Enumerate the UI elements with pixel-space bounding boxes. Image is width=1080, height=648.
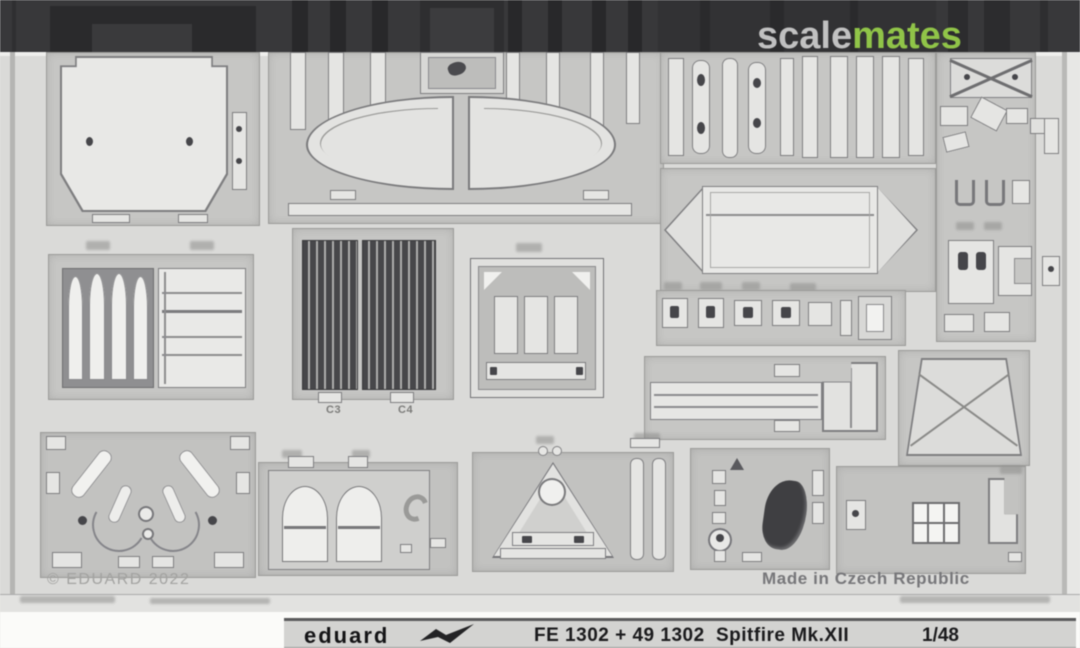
made-in-label: Made in Czech Republic — [762, 569, 970, 589]
nameplate-code: FE 1302 + 49 1302 — [534, 625, 705, 647]
pe-small-part — [118, 556, 140, 568]
pe-slat — [856, 56, 874, 158]
rivet-hole — [186, 137, 193, 146]
pe-tab — [330, 190, 356, 200]
louvre-line — [162, 354, 242, 356]
buckle-ring — [142, 528, 154, 540]
pe-bracket-part — [948, 240, 994, 304]
shadow-silhouette — [628, 0, 642, 52]
pe-tab — [348, 456, 368, 468]
pe-strip — [232, 112, 247, 190]
pe-small-part — [748, 62, 766, 154]
pe-rib — [554, 296, 578, 354]
part-label-smudge — [190, 241, 214, 250]
door-window-arch — [336, 486, 382, 562]
pe-part-armour-plate — [60, 56, 228, 212]
shadow-silhouette — [92, 24, 192, 52]
edge-smudge — [150, 598, 270, 604]
pe-part-trapezoid-brace — [906, 358, 1022, 456]
shadow-silhouette — [12, 0, 16, 52]
watermark-scale-text: scale — [757, 15, 852, 57]
louvre-slat — [133, 276, 148, 380]
pe-small-part — [236, 472, 250, 494]
part-label-smudge — [700, 282, 722, 290]
pe-small-part — [630, 438, 660, 448]
shadow-silhouette — [508, 0, 522, 52]
part-label-smudge — [1000, 466, 1022, 474]
etch-line — [710, 192, 870, 268]
pe-base-strip — [500, 548, 606, 559]
fret-right-margin — [1067, 52, 1080, 610]
buckle-hole — [670, 306, 679, 318]
pe-small-part — [552, 446, 562, 456]
shadow-silhouette — [1040, 0, 1048, 52]
buckle-hole — [753, 118, 761, 128]
rivet-hole — [236, 126, 242, 132]
pe-small-part — [1044, 118, 1059, 154]
watermark-mates-text: mates — [852, 15, 962, 57]
buckle-hole — [697, 74, 705, 86]
pe-tab — [774, 364, 800, 377]
pe-tab — [390, 392, 414, 403]
pe-slat — [882, 56, 900, 158]
edge-smudge — [900, 596, 1050, 603]
pe-small-part — [52, 552, 82, 568]
pe-part-face — [62, 58, 226, 210]
bracket-slot — [976, 252, 986, 270]
shadow-silhouette — [592, 0, 606, 52]
pe-small-part — [152, 556, 174, 568]
window-grid-part — [912, 502, 960, 544]
pe-small-part — [712, 470, 726, 484]
pe-small-part — [840, 300, 852, 336]
edge-smudge — [20, 596, 115, 603]
pe-small-part — [780, 58, 794, 156]
rivet-hole — [1048, 266, 1054, 272]
pe-small-part — [812, 502, 824, 524]
buckle-hole — [697, 122, 705, 134]
keyhole-stem — [714, 550, 726, 562]
pe-part-grille-c3 — [302, 240, 358, 390]
pe-buckle — [955, 180, 975, 206]
pe-small-part — [430, 538, 446, 548]
louvre-slat — [68, 276, 83, 380]
louvre-edge — [164, 272, 166, 384]
pe-small-part — [538, 446, 548, 456]
pe-strip — [626, 52, 640, 124]
pe-slat — [830, 56, 848, 158]
part-label-smudge — [664, 282, 682, 290]
pe-tab — [774, 420, 800, 432]
eduard-bird-logo-icon — [420, 624, 478, 644]
louvre-line — [162, 310, 242, 313]
part-label-smudge — [516, 243, 542, 252]
shadow-silhouette — [330, 0, 346, 52]
pe-strip — [290, 52, 306, 130]
bar-slot — [522, 536, 532, 543]
buckle-ring — [138, 506, 154, 522]
pe-part-long-bracket — [650, 382, 822, 420]
louvre-slat — [111, 273, 127, 380]
rivet-hole — [964, 74, 970, 80]
buckle-hole — [706, 306, 715, 318]
shadow-silhouette — [700, 0, 710, 52]
pe-small-part — [940, 106, 968, 126]
buckle-hole — [753, 78, 761, 88]
shadow-silhouette — [984, 0, 1010, 52]
pe-small-part — [722, 58, 738, 158]
fret-left-edge — [10, 52, 15, 610]
pe-tab — [583, 190, 609, 200]
buckle-hole — [781, 307, 791, 318]
pe-small-part — [742, 552, 762, 562]
pe-small-part — [984, 312, 1010, 332]
nameplate-scale: 1/48 — [922, 625, 959, 647]
pe-small-part — [46, 436, 66, 450]
fret-copyright: © EDUARD 2022 — [47, 571, 190, 589]
keyhole-hole — [716, 534, 724, 542]
pe-tab — [178, 214, 208, 223]
pe-buckle — [985, 180, 1005, 206]
rivet-hole — [86, 137, 93, 146]
pe-tab — [92, 214, 130, 223]
pe-small-part — [712, 512, 726, 524]
pe-vertical-strip — [630, 458, 644, 560]
pe-tab — [288, 456, 314, 468]
louvre-slat — [89, 273, 105, 380]
pe-small-part — [214, 552, 244, 568]
grid-line — [914, 522, 958, 524]
strip-notch — [490, 367, 497, 375]
rivet-hole — [236, 158, 242, 164]
pe-slat — [908, 58, 924, 156]
scalemates-watermark: scalemates — [757, 17, 962, 55]
nameplate-subject: Spitfire Mk.XII — [716, 625, 849, 647]
pe-small-part — [1012, 180, 1030, 204]
pe-part-x-brace — [950, 58, 1032, 98]
pe-tab — [318, 392, 342, 403]
photo-etch-fret-photo: scalemates — [0, 0, 1080, 648]
part-label-smudge — [956, 222, 974, 230]
buckle-hole — [743, 307, 753, 318]
window-divider — [338, 526, 380, 529]
shadow-silhouette — [292, 0, 308, 52]
part-label-smudge — [984, 222, 1002, 230]
rivet-hole — [852, 510, 859, 517]
louvre-line — [162, 336, 242, 338]
bar-slot — [574, 536, 584, 543]
pe-small-part — [714, 490, 726, 506]
pe-small-part — [802, 56, 818, 158]
part-label-c4: C4 — [398, 404, 413, 416]
pe-small-part — [668, 58, 684, 156]
pe-rib — [524, 296, 548, 354]
shadow-silhouette — [430, 8, 494, 52]
pe-part-louvre-plate — [158, 268, 246, 388]
door-window-arch — [282, 486, 328, 562]
fold-line — [654, 394, 818, 396]
pe-small-part — [1006, 108, 1028, 124]
part-label-smudge — [742, 282, 760, 290]
pe-buckle-plate — [808, 302, 832, 326]
pe-rib — [494, 296, 518, 354]
pe-small-part — [944, 314, 974, 332]
pe-small-part — [400, 544, 412, 553]
pe-part-grille-c4 — [362, 240, 436, 390]
pe-vertical-strip — [652, 458, 666, 560]
pe-strip-long — [288, 203, 632, 216]
pe-part-arched-louvres — [62, 268, 154, 388]
pe-small-part — [812, 470, 824, 496]
fold-line — [654, 406, 818, 408]
strip-notch — [576, 367, 583, 375]
c-channel-notch — [1014, 258, 1032, 284]
pe-small-part — [46, 472, 60, 494]
part-label-smudge — [86, 241, 110, 250]
fret-nameplate-strip: eduard FE 1302 + 49 1302 Spitfire Mk.XII… — [284, 618, 1076, 648]
frame-small-window — [866, 304, 884, 332]
pe-small-part — [230, 436, 250, 450]
shadow-silhouette — [372, 0, 388, 52]
window-divider — [284, 526, 326, 529]
pe-small-part — [1008, 552, 1022, 562]
rivet-hole — [208, 516, 217, 525]
part-label-smudge — [536, 436, 554, 444]
compass-ring — [538, 478, 566, 506]
pe-bottom-strip — [486, 362, 586, 380]
shadow-silhouette — [548, 0, 562, 52]
rivet-hole — [1012, 74, 1018, 80]
bracket-slot — [958, 252, 968, 270]
eduard-logo-text: eduard — [304, 623, 389, 648]
part-label-c3: C3 — [326, 404, 341, 416]
rivet-hole — [78, 516, 87, 525]
louvre-line — [162, 292, 242, 294]
